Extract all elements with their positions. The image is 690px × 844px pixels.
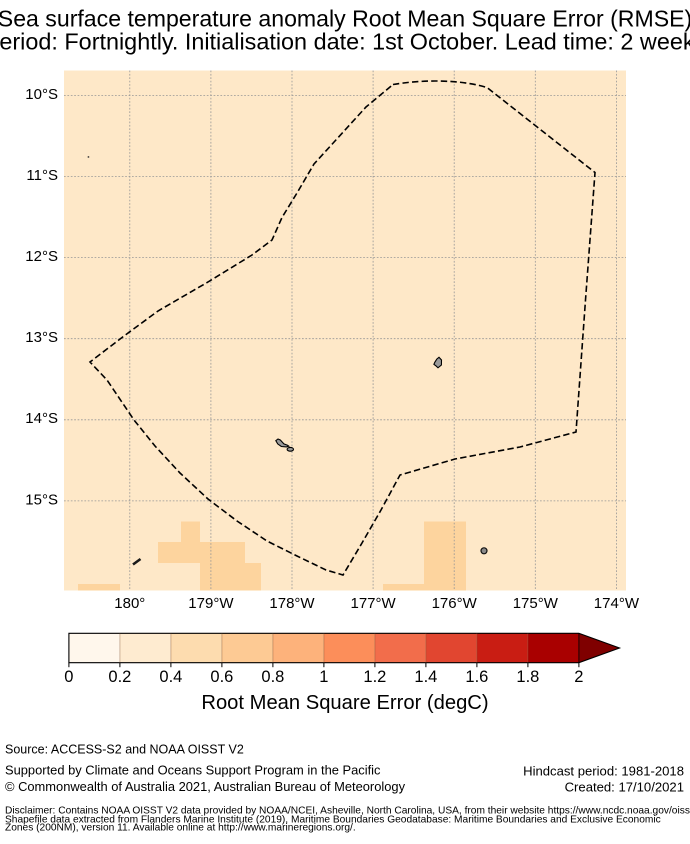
svg-text:180°: 180° xyxy=(114,595,145,612)
svg-text:1.8: 1.8 xyxy=(516,668,539,686)
svg-text:14°S: 14°S xyxy=(25,410,58,427)
svg-text:176°W: 176°W xyxy=(432,595,478,612)
svg-text:Created: 17/10/2021: Created: 17/10/2021 xyxy=(565,780,684,795)
svg-text:0.4: 0.4 xyxy=(159,668,182,686)
svg-text:179°W: 179°W xyxy=(188,595,234,612)
svg-text:1.2: 1.2 xyxy=(363,668,386,686)
svg-text:0.2: 0.2 xyxy=(108,668,131,686)
svg-text:1: 1 xyxy=(319,668,328,686)
svg-text:1.4: 1.4 xyxy=(414,668,437,686)
svg-text:12°S: 12°S xyxy=(25,248,58,265)
svg-text:15°S: 15°S xyxy=(25,491,58,508)
svg-text:0: 0 xyxy=(64,668,73,686)
svg-text:Supported by Climate and Ocean: Supported by Climate and Oceans Support … xyxy=(5,763,381,778)
svg-text:13°S: 13°S xyxy=(25,329,58,346)
svg-text:175°W: 175°W xyxy=(513,595,559,612)
svg-text:Period: Fortnightly. Initialis: Period: Fortnightly. Initialisation date… xyxy=(0,28,690,54)
svg-text:Zones (200NM), version 11. Ava: Zones (200NM), version 11. Available onl… xyxy=(5,823,356,834)
svg-text:10°S: 10°S xyxy=(25,86,58,103)
svg-text:0.8: 0.8 xyxy=(261,668,284,686)
svg-text:Hindcast period: 1981-2018: Hindcast period: 1981-2018 xyxy=(523,764,684,779)
svg-text:0.6: 0.6 xyxy=(210,668,233,686)
svg-text:174°W: 174°W xyxy=(594,595,640,612)
svg-text:1.6: 1.6 xyxy=(465,668,488,686)
svg-text:Root Mean Square Error (degC): Root Mean Square Error (degC) xyxy=(201,692,488,714)
svg-text:Source: ACCESS-S2 and NOAA OIS: Source: ACCESS-S2 and NOAA OISST V2 xyxy=(5,743,244,757)
svg-text:2: 2 xyxy=(574,668,583,686)
svg-text:178°W: 178°W xyxy=(269,595,315,612)
svg-text:177°W: 177°W xyxy=(351,595,397,612)
svg-text:© Commonwealth of Australia 20: © Commonwealth of Australia 2021, Austra… xyxy=(5,779,406,794)
svg-text:11°S: 11°S xyxy=(26,167,58,184)
